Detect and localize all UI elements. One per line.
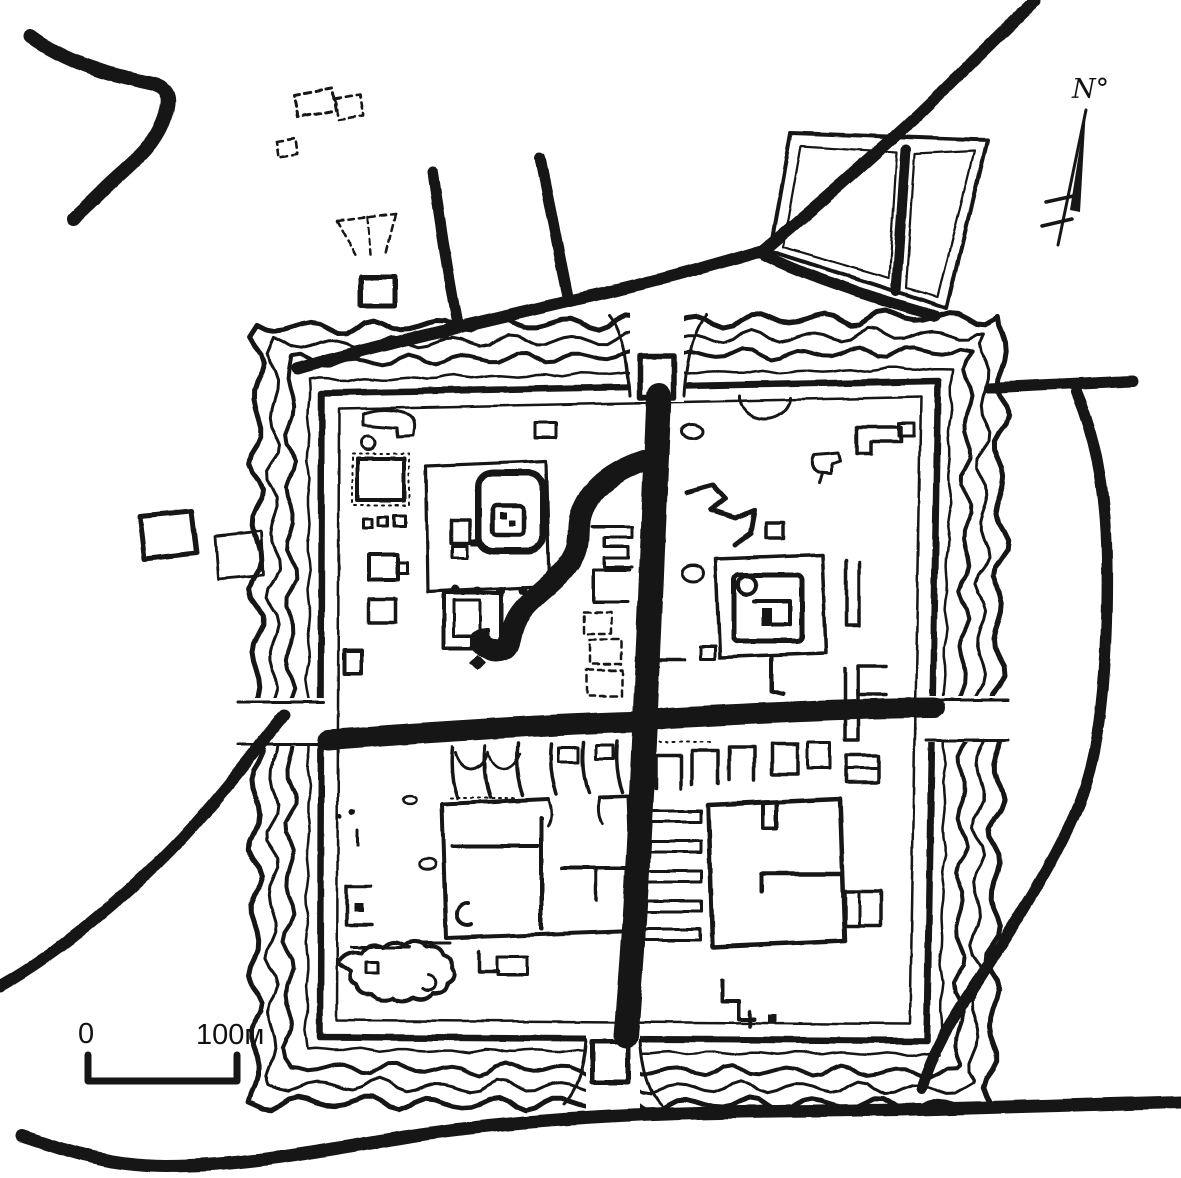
outlying-enclosures-west — [140, 511, 263, 579]
compass: N° — [1042, 74, 1109, 245]
solid-ruin-square — [361, 277, 395, 306]
compound-northeast — [654, 396, 914, 740]
scale-bar: 0 100м — [78, 1018, 264, 1081]
scale-zero-label: 0 — [78, 1018, 94, 1050]
road-west-gate — [0, 715, 284, 986]
scale-length-label: 100м — [196, 1019, 264, 1051]
outlying-ruins-north — [277, 88, 396, 306]
site-plan-map: N° 0 100м — [0, 0, 1181, 1178]
site-plan-page: N° 0 100м — [0, 0, 1181, 1178]
courtyard-building-southwest — [338, 741, 634, 1002]
river-south — [22, 1102, 1181, 1166]
stream-channel — [480, 460, 645, 650]
ruined-enclosure-scalloped — [338, 942, 454, 1002]
compass-label: N° — [1071, 74, 1109, 105]
hall-building-southeast — [644, 742, 881, 1026]
